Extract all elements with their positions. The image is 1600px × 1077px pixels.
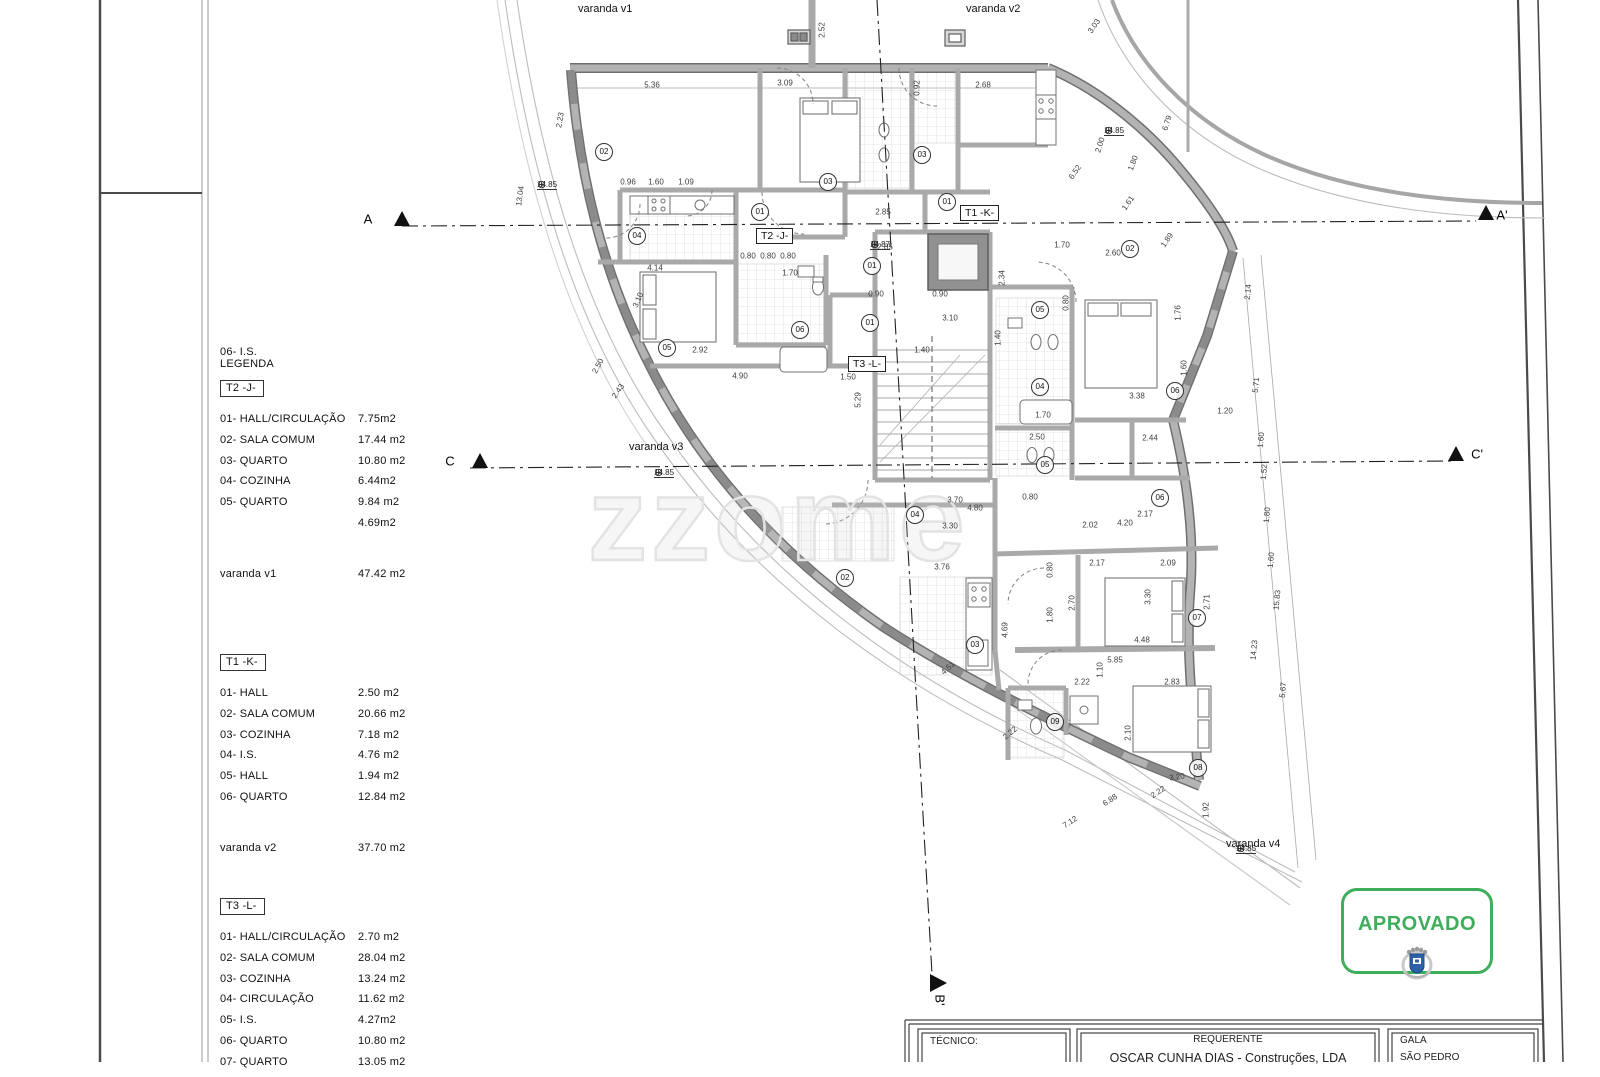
titleblock-requerente-label: REQUERENTE — [1193, 1034, 1262, 1045]
stamp-label: APROVADO — [1344, 913, 1490, 936]
titleblock-local-line2: SÃO PEDRO — [1400, 1052, 1459, 1063]
drawing-sheet: zzome 06- I.S.LEGENDAT2 -J-01- HALL/CIRC… — [0, 0, 1600, 1062]
titleblock-requerente-name: OSCAR CUNHA DIAS - Construções, LDA — [1110, 1051, 1347, 1065]
titleblock-local-line1: GALA — [1400, 1035, 1427, 1046]
staircase — [877, 336, 988, 478]
elevator — [928, 234, 988, 290]
section-lines — [402, 0, 1476, 974]
approval-stamp: APROVADO — [1341, 888, 1493, 974]
titleblock-tecnico-label: TÉCNICO: — [930, 1036, 978, 1047]
municipal-crest-icon — [1400, 943, 1434, 988]
